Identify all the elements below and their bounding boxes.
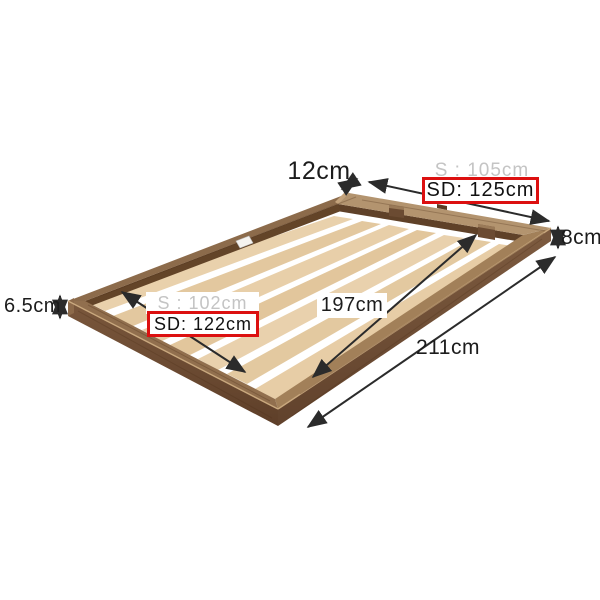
size-sd-top-label: SD: 125cm [422,177,539,204]
height-left-label: 6.5cm [4,295,61,318]
height-right-label: 8cm [561,226,600,250]
frame-rails-group [68,191,551,409]
rail-width-label: 12cm [285,157,353,186]
size-sd-inner-label: SD: 122cm [147,311,259,337]
outer-length-label: 211cm [416,336,480,360]
bed-frame-illustration [0,0,600,600]
product-dimension-diagram: 12cm S : 105cm SD: 125cm 8cm 6.5cm S : 1… [0,0,600,600]
inner-length-label: 197cm [317,293,387,318]
